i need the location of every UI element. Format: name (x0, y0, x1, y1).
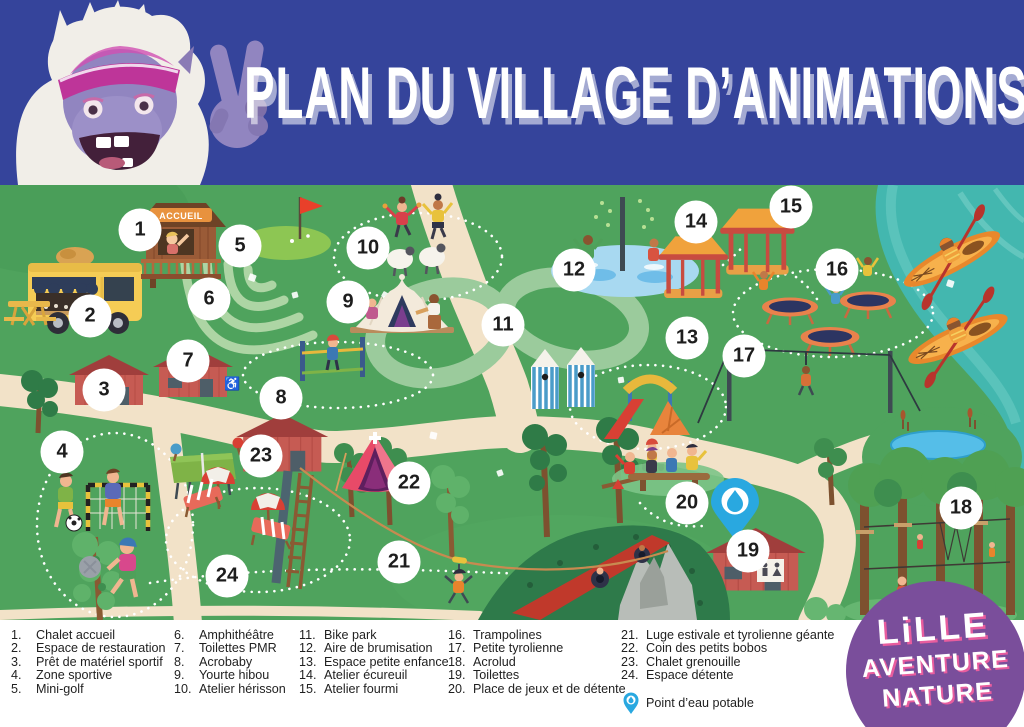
legend-item: 17.Petite tyrolienne (448, 642, 626, 655)
legend-item: 11.Bike park (299, 629, 449, 642)
header-banner: PLAN DU VILLAGE D’ANIMATIONS (0, 0, 1024, 185)
map-marker-12: 12 (553, 249, 596, 292)
map-marker-16: 16 (816, 249, 859, 292)
map-marker-2: 2 (69, 295, 112, 338)
legend-item: 23.Chalet grenouille (621, 656, 834, 669)
map-marker-21: 21 (378, 541, 421, 584)
legend-item: 18.Acrolud (448, 656, 626, 669)
map-marker-24: 24 (206, 555, 249, 598)
map-area: ACCUEIL ♿ (0, 185, 1024, 620)
legend-item: 2.Espace de restauration (11, 642, 166, 655)
water-point-label: Point d’eau potable (646, 696, 754, 710)
legend-item: 12.Aire de brumisation (299, 642, 449, 655)
legend-item: 19.Toilettes (448, 669, 626, 682)
sheep-icon (387, 244, 446, 277)
legend-item: 24.Espace détente (621, 669, 834, 682)
map-marker-11: 11 (482, 304, 525, 347)
map-marker-3: 3 (83, 369, 126, 412)
acrobaby (300, 334, 365, 381)
legend-item: 8.Acrobaby (174, 656, 286, 669)
legend-item: 20.Place de jeux et de détente (448, 683, 626, 696)
map-marker-10: 10 (347, 227, 390, 270)
map-marker-17: 17 (723, 335, 766, 378)
sport-zone (56, 469, 148, 597)
map-marker-13: 13 (666, 317, 709, 360)
legend-item: 21.Luge estivale et tyrolienne géante (621, 629, 834, 642)
legend-column-2: 6.Amphithéâtre7.Toilettes PMR8.Acrobaby9… (174, 629, 286, 696)
map-marker-15: 15 (770, 186, 813, 229)
legend-item: 3.Prêt de matériel sportif (11, 656, 166, 669)
map-marker-8: 8 (260, 377, 303, 420)
legend-item: 5.Mini-golf (11, 683, 166, 696)
lounger-icon (183, 479, 291, 549)
map-marker-20: 20 (666, 482, 709, 525)
legend-item: 22.Coin des petits bobos (621, 642, 834, 655)
legend-item: 16.Trampolines (448, 629, 626, 642)
page-title: PLAN DU VILLAGE D’ANIMATIONS (244, 49, 1024, 134)
legend-item: 15.Atelier fourmi (299, 683, 449, 696)
legend-column-1: 1.Chalet accueil2.Espace de restauration… (11, 629, 166, 696)
map-marker-1: 1 (119, 209, 162, 252)
legend-column-4: 16.Trampolines17.Petite tyrolienne18.Acr… (448, 629, 626, 696)
legend-item: 7.Toilettes PMR (174, 642, 286, 655)
map-marker-5: 5 (219, 225, 262, 268)
map-marker-18: 18 (940, 487, 983, 530)
legend-item: 9.Yourte hibou (174, 669, 286, 682)
legend-item: 4.Zone sportive (11, 669, 166, 682)
legend-column-5: 21.Luge estivale et tyrolienne géante22.… (621, 629, 834, 683)
map-marker-7: 7 (167, 340, 210, 383)
map-marker-9: 9 (327, 281, 370, 324)
map-marker-22: 22 (388, 462, 431, 505)
map-marker-23: 23 (240, 435, 283, 478)
map-marker-6: 6 (188, 278, 231, 321)
legend-item: 10.Atelier hérisson (174, 683, 286, 696)
map-illustration: ACCUEIL ♿ (0, 185, 1024, 620)
legend-item: 1.Chalet accueil (11, 629, 166, 642)
legend-item: 6.Amphithéâtre (174, 629, 286, 642)
map-marker-4: 4 (41, 431, 84, 474)
plan-poster: PLAN DU VILLAGE D’ANIMATIONS (0, 0, 1024, 727)
map-marker-19: 19 (727, 530, 770, 573)
legend-column-3: 11.Bike park12.Aire de brumisation13.Esp… (299, 629, 449, 696)
legend-item: 14.Atelier écureuil (299, 669, 449, 682)
wheelchair-icon: ♿ (224, 376, 240, 391)
legend-item: 13.Espace petite enfance (299, 656, 449, 669)
map-marker-14: 14 (675, 201, 718, 244)
water-point-legend: Point d’eau potable (623, 692, 754, 714)
accueil-sign-label: ACCUEIL (159, 211, 203, 221)
water-pin-icon (623, 692, 639, 714)
